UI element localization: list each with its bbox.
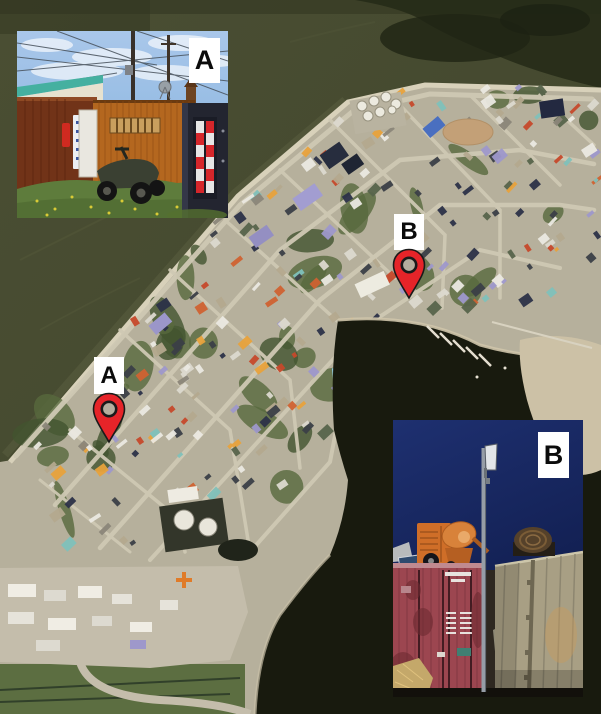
- white-door: [79, 110, 97, 177]
- fire-extinguisher: [62, 123, 70, 147]
- marker-a-label: A: [94, 357, 124, 394]
- location-marker-b: B: [392, 214, 426, 302]
- airport-area: [0, 566, 250, 714]
- inset-photo-b: B: [393, 420, 583, 697]
- photo-a-label: A: [189, 38, 220, 83]
- map-pin-icon: [92, 392, 126, 444]
- map-figure: A B: [0, 0, 601, 714]
- photo-b-label: B: [538, 432, 569, 478]
- marker-b-label: B: [394, 214, 424, 250]
- tan-container: [495, 552, 583, 692]
- map-pin-icon: [392, 248, 426, 300]
- inset-photo-a: A: [17, 31, 228, 218]
- location-marker-a: A: [92, 357, 126, 447]
